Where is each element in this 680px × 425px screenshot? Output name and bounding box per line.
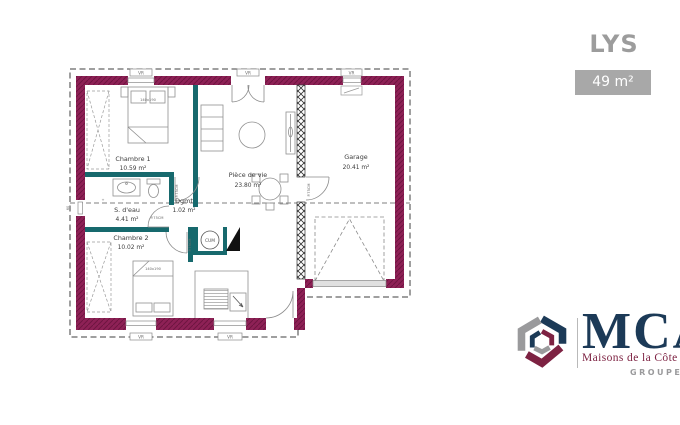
garage-partition-wall — [297, 85, 305, 279]
room-label-chambre2: Chambre 2 — [113, 234, 148, 242]
bathroom-wall-fix — [169, 172, 174, 177]
room-area-sdeau: 4.41 m² — [115, 216, 138, 223]
mca-cube-icon — [515, 314, 569, 368]
door-size-label: P.75CM — [188, 239, 192, 252]
room-label-garage: Garage — [344, 153, 367, 161]
kitchen — [195, 271, 248, 318]
room-area-dgmt: 1.02 m² — [172, 207, 195, 214]
mca-logo: MCA Maisons de la Côte Atlantique GROUPE… — [513, 310, 680, 390]
total-area-badge: 49 m² — [575, 70, 651, 95]
room-label-chambre1: Chambre 1 — [115, 155, 150, 163]
water-heater-label: CUM — [205, 238, 215, 244]
door-size-label: P.75CM — [175, 185, 179, 198]
floor-plan: Chambre 1 10.59 m² S. d'eau 4.41 m² Dgmt… — [58, 55, 430, 347]
room-area-piecedevie: 23.80 m² — [235, 182, 262, 189]
bed-size-label: 140x190 — [140, 98, 157, 102]
room-area-garage: 20.41 m² — [343, 164, 370, 171]
plus-mark: + — [101, 198, 104, 202]
bathroom-fixtures — [113, 179, 160, 198]
logo-group-text: GROUPE HEXAOM — [630, 368, 680, 377]
shutter-label: VR — [138, 71, 144, 76]
living-furniture — [201, 105, 295, 210]
flyer-page: Chambre 1 10.59 m² S. d'eau 4.41 m² Dgmt… — [0, 0, 680, 425]
roof-outline — [70, 69, 410, 337]
bed-size-label: 140x190 — [145, 267, 162, 271]
shutter-label: VR — [227, 335, 233, 340]
room-label-piecedevie: Pièce de vie — [229, 171, 267, 179]
window-dim-label: 60 — [66, 205, 70, 210]
room-label-sdeau: S. d'eau — [114, 206, 140, 214]
bedroom2-furniture — [87, 242, 173, 316]
shutter-label: VR — [349, 71, 355, 76]
room-area-chambre1: 10.59 m² — [120, 165, 147, 172]
floor-plan-svg: Chambre 1 10.59 m² S. d'eau 4.41 m² Dgmt… — [58, 55, 430, 347]
door-size-label: P.75CM — [307, 184, 311, 197]
interior-partitions — [85, 85, 227, 262]
room-area-chambre2: 10.02 m² — [118, 244, 145, 251]
logo-divider — [577, 318, 578, 368]
model-name: LYS — [553, 30, 675, 60]
garage-door — [313, 86, 386, 287]
door-size-label: P.75CM — [151, 216, 164, 220]
shutter-label: VR — [138, 335, 144, 340]
shutter-label: VR — [245, 71, 251, 76]
logo-tagline: Maisons de la Côte Atlantique — [582, 352, 680, 364]
